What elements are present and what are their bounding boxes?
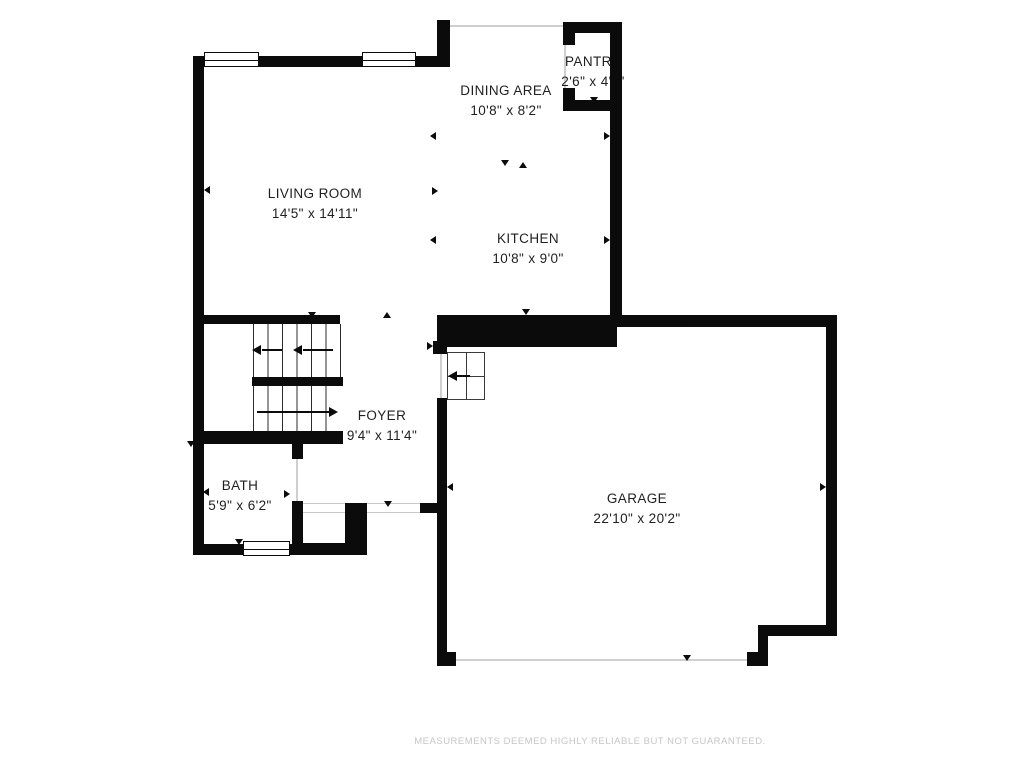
wall-garage-left-stub-top [433,341,447,354]
dimension-tick [683,655,691,661]
stair-arrow-line [303,349,333,351]
wall-garage-step-horizontal [758,625,837,636]
dimension-tick [519,162,527,168]
room-label-bath: BATH 5'9" x 6'2" [208,476,271,516]
wall-pantry-left-stub-top [563,33,575,45]
stair-arrow-up-icon [448,371,457,381]
dimension-tick [430,236,436,244]
opening-bath-door [296,459,298,501]
dimension-tick [590,97,598,103]
dimension-tick [203,488,209,496]
room-dims: 14'5" x 14'11" [268,204,362,224]
stair-arrow-line [257,411,329,413]
room-dims: 9'4" x 11'4" [347,426,417,446]
room-name: DINING AREA [460,81,551,101]
dimension-tick [501,160,509,166]
room-dims: 22'10" x 20'2" [593,509,680,529]
stair-arrow-up-icon [293,345,302,355]
wall-kitchen-bottom-block [437,315,617,347]
opening-garage-door-interior [440,354,442,398]
window-pane-line [244,549,289,550]
dimension-tick [311,58,319,64]
dimension-tick [590,25,598,31]
wall-stairs-bottom [193,431,343,444]
dimension-tick [430,132,436,140]
dimension-tick [427,342,433,350]
room-label-garage: GARAGE 22'10" x 20'2" [593,489,680,529]
wall-garage-top [617,315,837,327]
dimension-tick [604,236,610,244]
wall-garage-step-foot [747,652,768,666]
opening-dining-top [450,25,563,27]
wall-left-outer [193,56,204,555]
dimension-tick [432,187,438,195]
wall-garage-right [826,315,837,636]
wall-right-pantry-kitchen [610,22,622,325]
stair-arrow-up-icon [252,345,261,355]
stair-arrow-line [262,349,282,351]
wall-stairs-landing [252,377,343,386]
stair-arrow-down-icon [329,407,338,417]
disclaimer-text: MEASUREMENTS DEEMED HIGHLY RELIABLE BUT … [414,736,765,747]
opening-front-entry [367,503,422,513]
room-label-living: LIVING ROOM 14'5" x 14'11" [268,184,362,224]
window-living-left [204,52,259,67]
room-name: FOYER [347,406,417,426]
opening-garage-overhead-door [455,659,748,661]
dimension-tick [308,312,316,318]
wall-bath-right-stub [292,444,303,459]
dimension-tick [384,501,392,507]
window-pane-line [205,60,258,61]
room-dims: 5'9" x 6'2" [208,496,271,516]
dimension-tick [284,490,290,498]
dimension-tick [447,483,453,491]
wall-porch-pillar [345,503,367,548]
wall-stairs-top [193,315,340,324]
wall-garage-left-foot [437,652,456,666]
dimension-tick [522,309,530,315]
dimension-tick [204,186,210,194]
stair-arrow-line [456,375,470,377]
dimension-tick [235,539,243,545]
room-name: KITCHEN [492,229,563,249]
wall-pantry-left-stub-bottom [563,88,575,102]
wall-garage-left [437,398,447,658]
window-living-right [362,52,416,67]
dimension-tick [820,483,826,491]
room-name: GARAGE [593,489,680,509]
wall-top-step-vertical [437,20,450,67]
room-label-foyer: FOYER 9'4" x 11'4" [347,406,417,446]
room-dims: 10'8" x 8'2" [460,101,551,121]
dimension-tick [683,321,691,327]
room-label-kitchen: KITCHEN 10'8" x 9'0" [492,229,563,269]
dimension-tick [187,441,195,447]
room-label-dining: DINING AREA 10'8" x 8'2" [460,81,551,121]
window-bath [243,541,290,556]
staircase-lower-flight [253,386,340,431]
room-name: LIVING ROOM [268,184,362,204]
room-dims: 10'8" x 9'0" [492,249,563,269]
dimension-tick [604,132,610,140]
floor-plan: LIVING ROOM 14'5" x 14'11" DINING AREA 1… [0,0,1024,768]
window-pane-line [363,60,415,61]
room-name: BATH [208,476,271,496]
opening-porch-sidelight [303,503,345,513]
dimension-tick [383,312,391,318]
wall-entry-right-stub [420,503,437,513]
